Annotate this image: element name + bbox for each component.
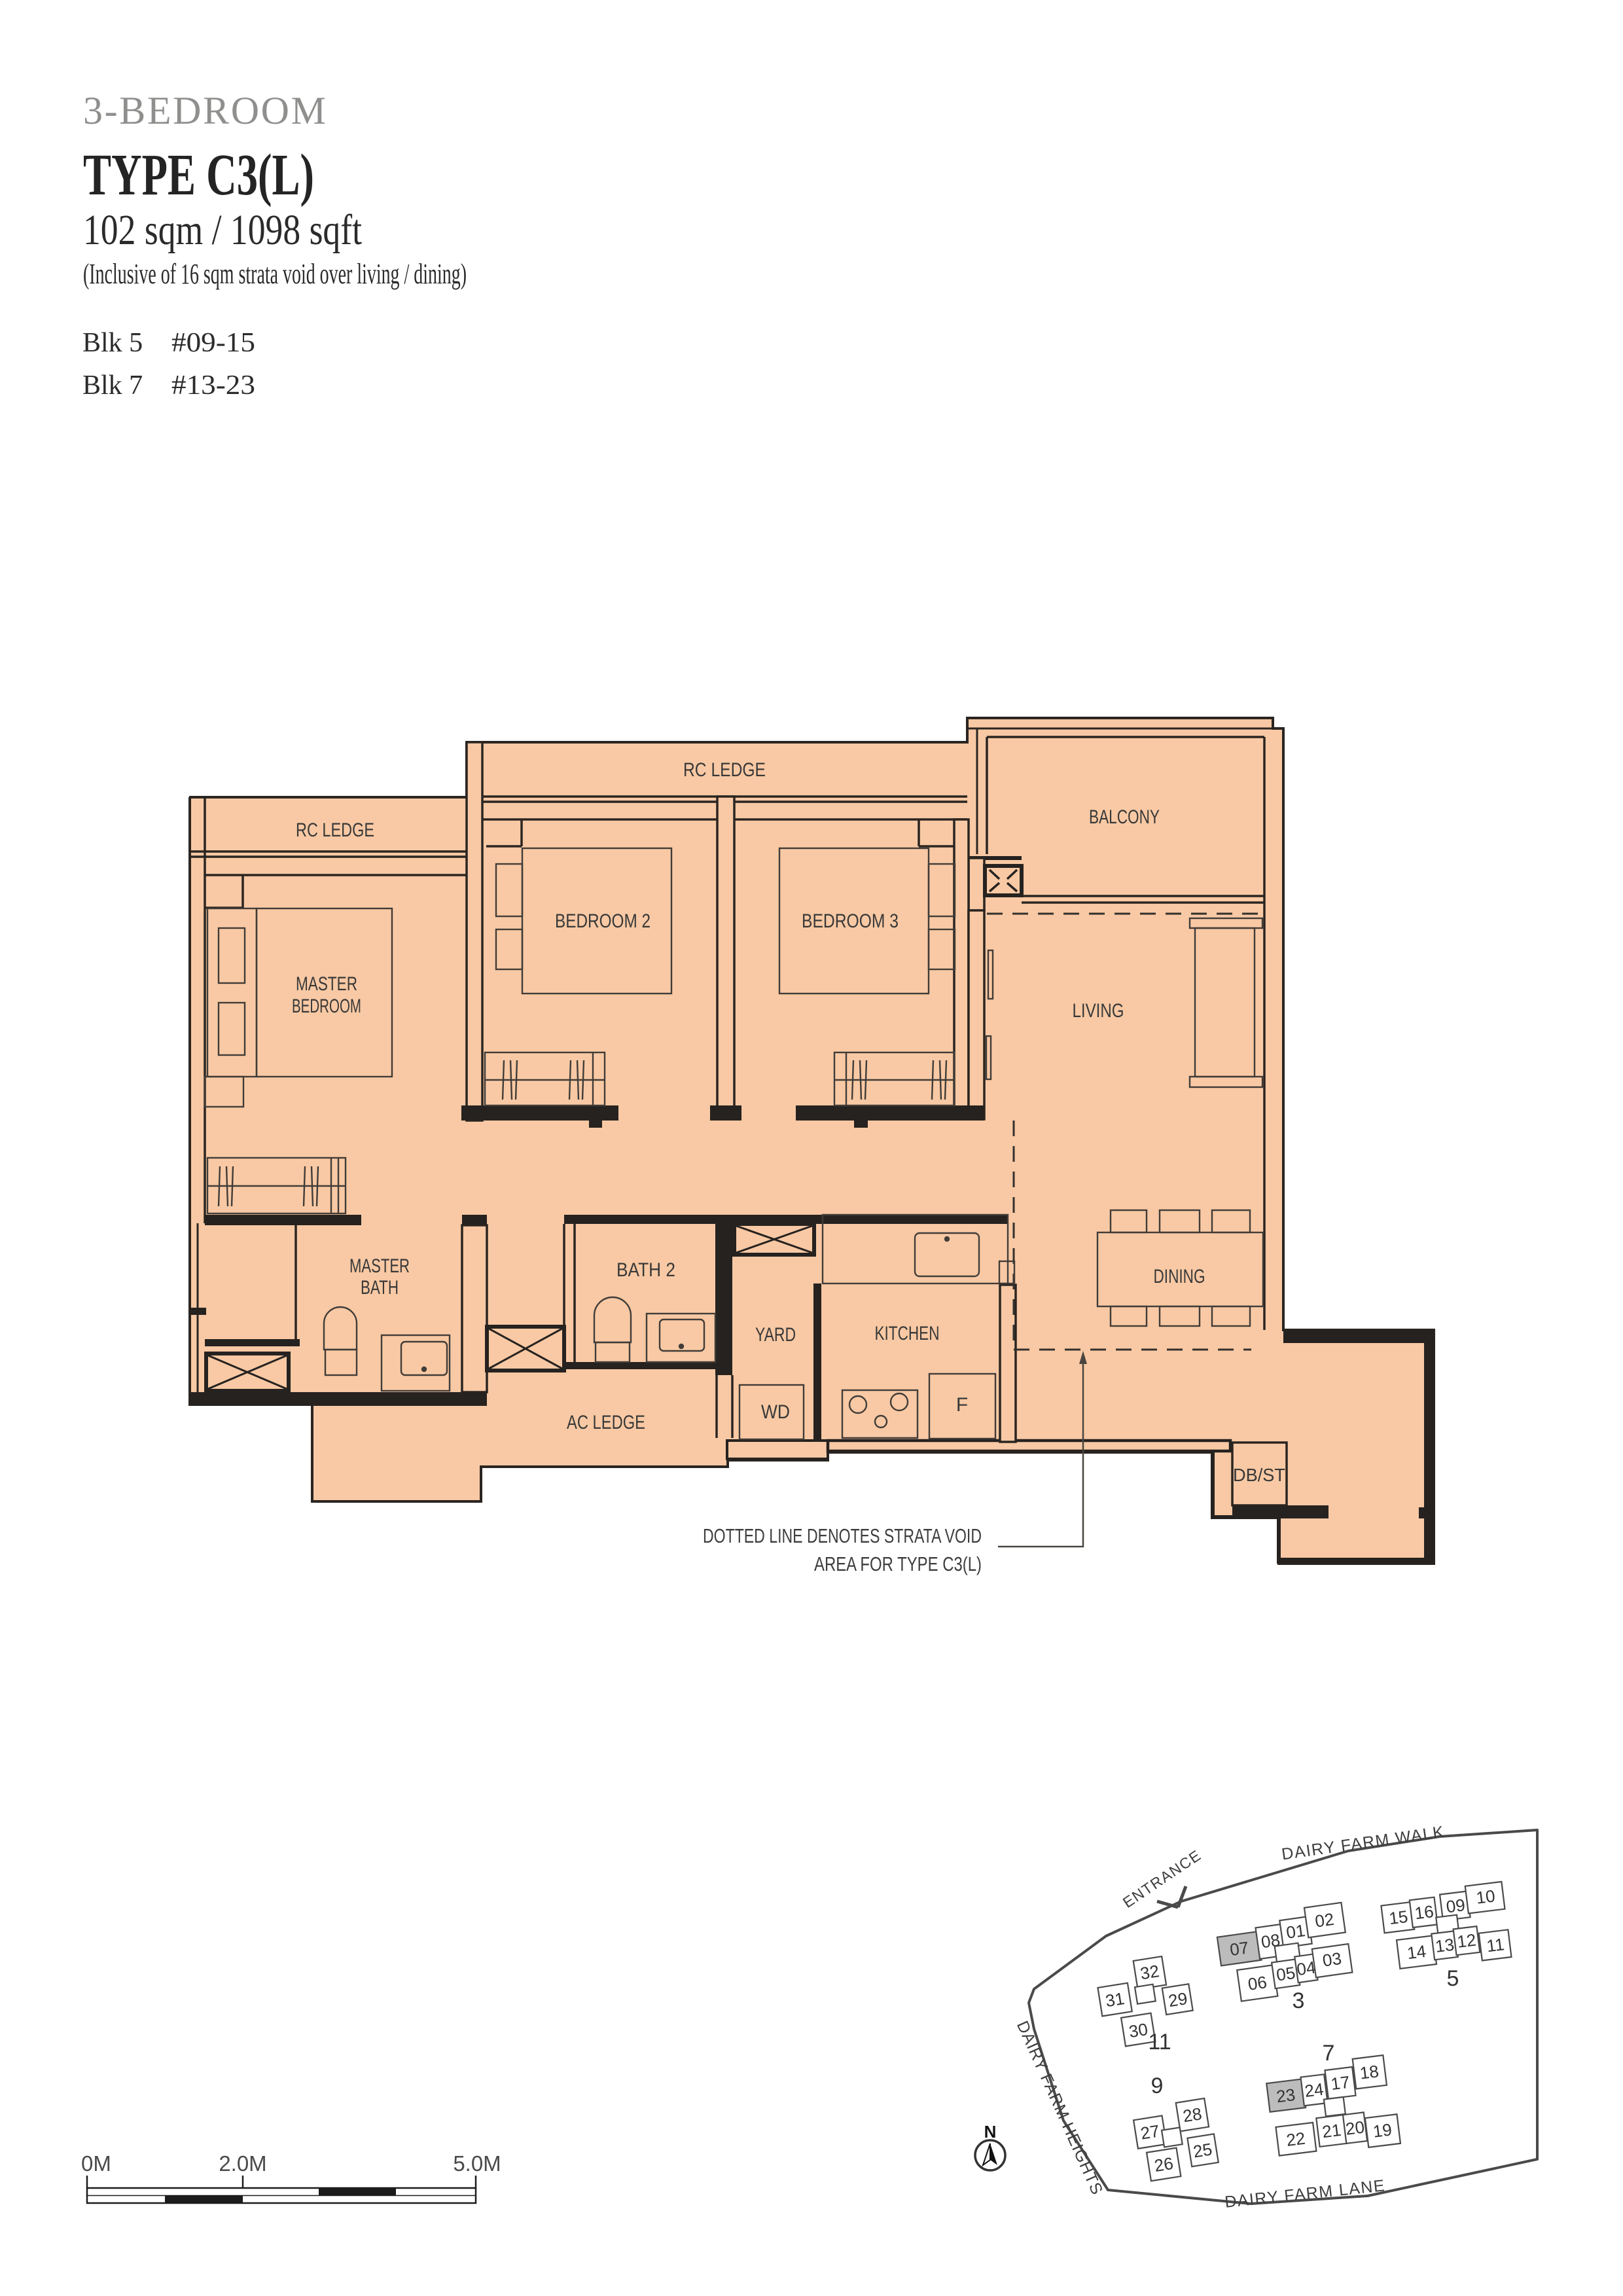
svg-text:5.0M: 5.0M <box>453 2151 501 2176</box>
svg-text:2.0M: 2.0M <box>219 2151 266 2176</box>
svg-text:31: 31 <box>1104 1988 1126 2011</box>
svg-text:TYPE C3(L): TYPE C3(L) <box>83 143 314 207</box>
svg-text:(Inclusive of 16 sqm strata vo: (Inclusive of 16 sqm strata void over li… <box>83 258 467 290</box>
svg-text:01: 01 <box>1285 1920 1306 1943</box>
svg-text:AREA FOR TYPE C3(L): AREA FOR TYPE C3(L) <box>814 1552 982 1575</box>
svg-text:20: 20 <box>1344 2117 1365 2139</box>
svg-text:05: 05 <box>1275 1963 1296 1985</box>
svg-text:5: 5 <box>1447 1966 1459 1991</box>
svg-text:24: 24 <box>1304 2079 1325 2101</box>
svg-text:02: 02 <box>1313 1909 1335 1931</box>
svg-text:MASTER: MASTER <box>349 1255 410 1277</box>
svg-text:BEDROOM 3: BEDROOM 3 <box>802 910 899 932</box>
svg-text:21: 21 <box>1321 2120 1342 2142</box>
svg-text:09: 09 <box>1445 1895 1466 1916</box>
svg-text:AC LEDGE: AC LEDGE <box>567 1412 645 1433</box>
svg-text:#13-23: #13-23 <box>171 370 255 401</box>
svg-text:23: 23 <box>1275 2085 1296 2106</box>
svg-text:14: 14 <box>1406 1941 1427 1963</box>
svg-text:LIVING: LIVING <box>1073 1000 1124 1022</box>
svg-text:27: 27 <box>1139 2121 1161 2144</box>
svg-text:11: 11 <box>1486 1934 1505 1956</box>
svg-text:DOTTED LINE DENOTES STRATA VOI: DOTTED LINE DENOTES STRATA VOID <box>703 1524 982 1547</box>
svg-text:BEDROOM 2: BEDROOM 2 <box>555 910 651 932</box>
svg-text:BEDROOM: BEDROOM <box>292 996 361 1017</box>
svg-text:07: 07 <box>1228 1937 1250 1960</box>
svg-text:10: 10 <box>1475 1886 1496 1907</box>
svg-text:11: 11 <box>1148 2030 1171 2054</box>
svg-text:WD: WD <box>761 1401 790 1423</box>
svg-text:9: 9 <box>1151 2073 1164 2098</box>
svg-text:7: 7 <box>1323 2041 1335 2066</box>
svg-text:15: 15 <box>1388 1907 1409 1928</box>
svg-text:19: 19 <box>1372 2119 1393 2141</box>
svg-text:17: 17 <box>1330 2072 1351 2094</box>
svg-text:3-BEDROOM: 3-BEDROOM <box>83 89 326 132</box>
svg-text:DB/ST: DB/ST <box>1233 1465 1285 1485</box>
svg-text:12: 12 <box>1456 1929 1477 1951</box>
svg-text:03: 03 <box>1321 1948 1343 1971</box>
svg-text:13: 13 <box>1434 1935 1455 1956</box>
svg-text:30: 30 <box>1128 2019 1149 2041</box>
svg-text:3: 3 <box>1293 1988 1305 2013</box>
svg-text:16: 16 <box>1414 1901 1435 1923</box>
svg-text:32: 32 <box>1139 1961 1160 1983</box>
svg-text:RC LEDGE: RC LEDGE <box>683 759 766 781</box>
svg-text:04: 04 <box>1295 1957 1317 1979</box>
svg-text:KITCHEN: KITCHEN <box>875 1323 940 1344</box>
svg-text:BATH 2: BATH 2 <box>616 1259 675 1281</box>
svg-text:18: 18 <box>1359 2061 1380 2083</box>
svg-text:BATH: BATH <box>361 1277 399 1299</box>
svg-text:MASTER: MASTER <box>296 973 357 995</box>
svg-text:RC LEDGE: RC LEDGE <box>296 819 374 841</box>
svg-text:102 sqm / 1098 sqft: 102 sqm / 1098 sqft <box>83 206 362 254</box>
svg-text:25: 25 <box>1192 2139 1213 2161</box>
svg-text:YARD: YARD <box>755 1324 796 1346</box>
svg-text:29: 29 <box>1167 1988 1188 2011</box>
svg-text:DINING: DINING <box>1154 1266 1205 1287</box>
svg-text:N: N <box>984 2122 997 2142</box>
svg-text:BALCONY: BALCONY <box>1089 806 1160 828</box>
svg-text:28: 28 <box>1181 2104 1203 2126</box>
svg-text:26: 26 <box>1153 2153 1175 2176</box>
svg-text:22: 22 <box>1285 2128 1306 2150</box>
svg-text:06: 06 <box>1247 1972 1268 1994</box>
svg-text:#09-15: #09-15 <box>171 328 255 358</box>
svg-text:0M: 0M <box>81 2151 111 2176</box>
svg-text:Blk 5: Blk 5 <box>82 328 143 358</box>
svg-text:08: 08 <box>1260 1930 1281 1952</box>
svg-text:Blk 7: Blk 7 <box>82 370 143 401</box>
svg-text:F: F <box>956 1394 968 1416</box>
